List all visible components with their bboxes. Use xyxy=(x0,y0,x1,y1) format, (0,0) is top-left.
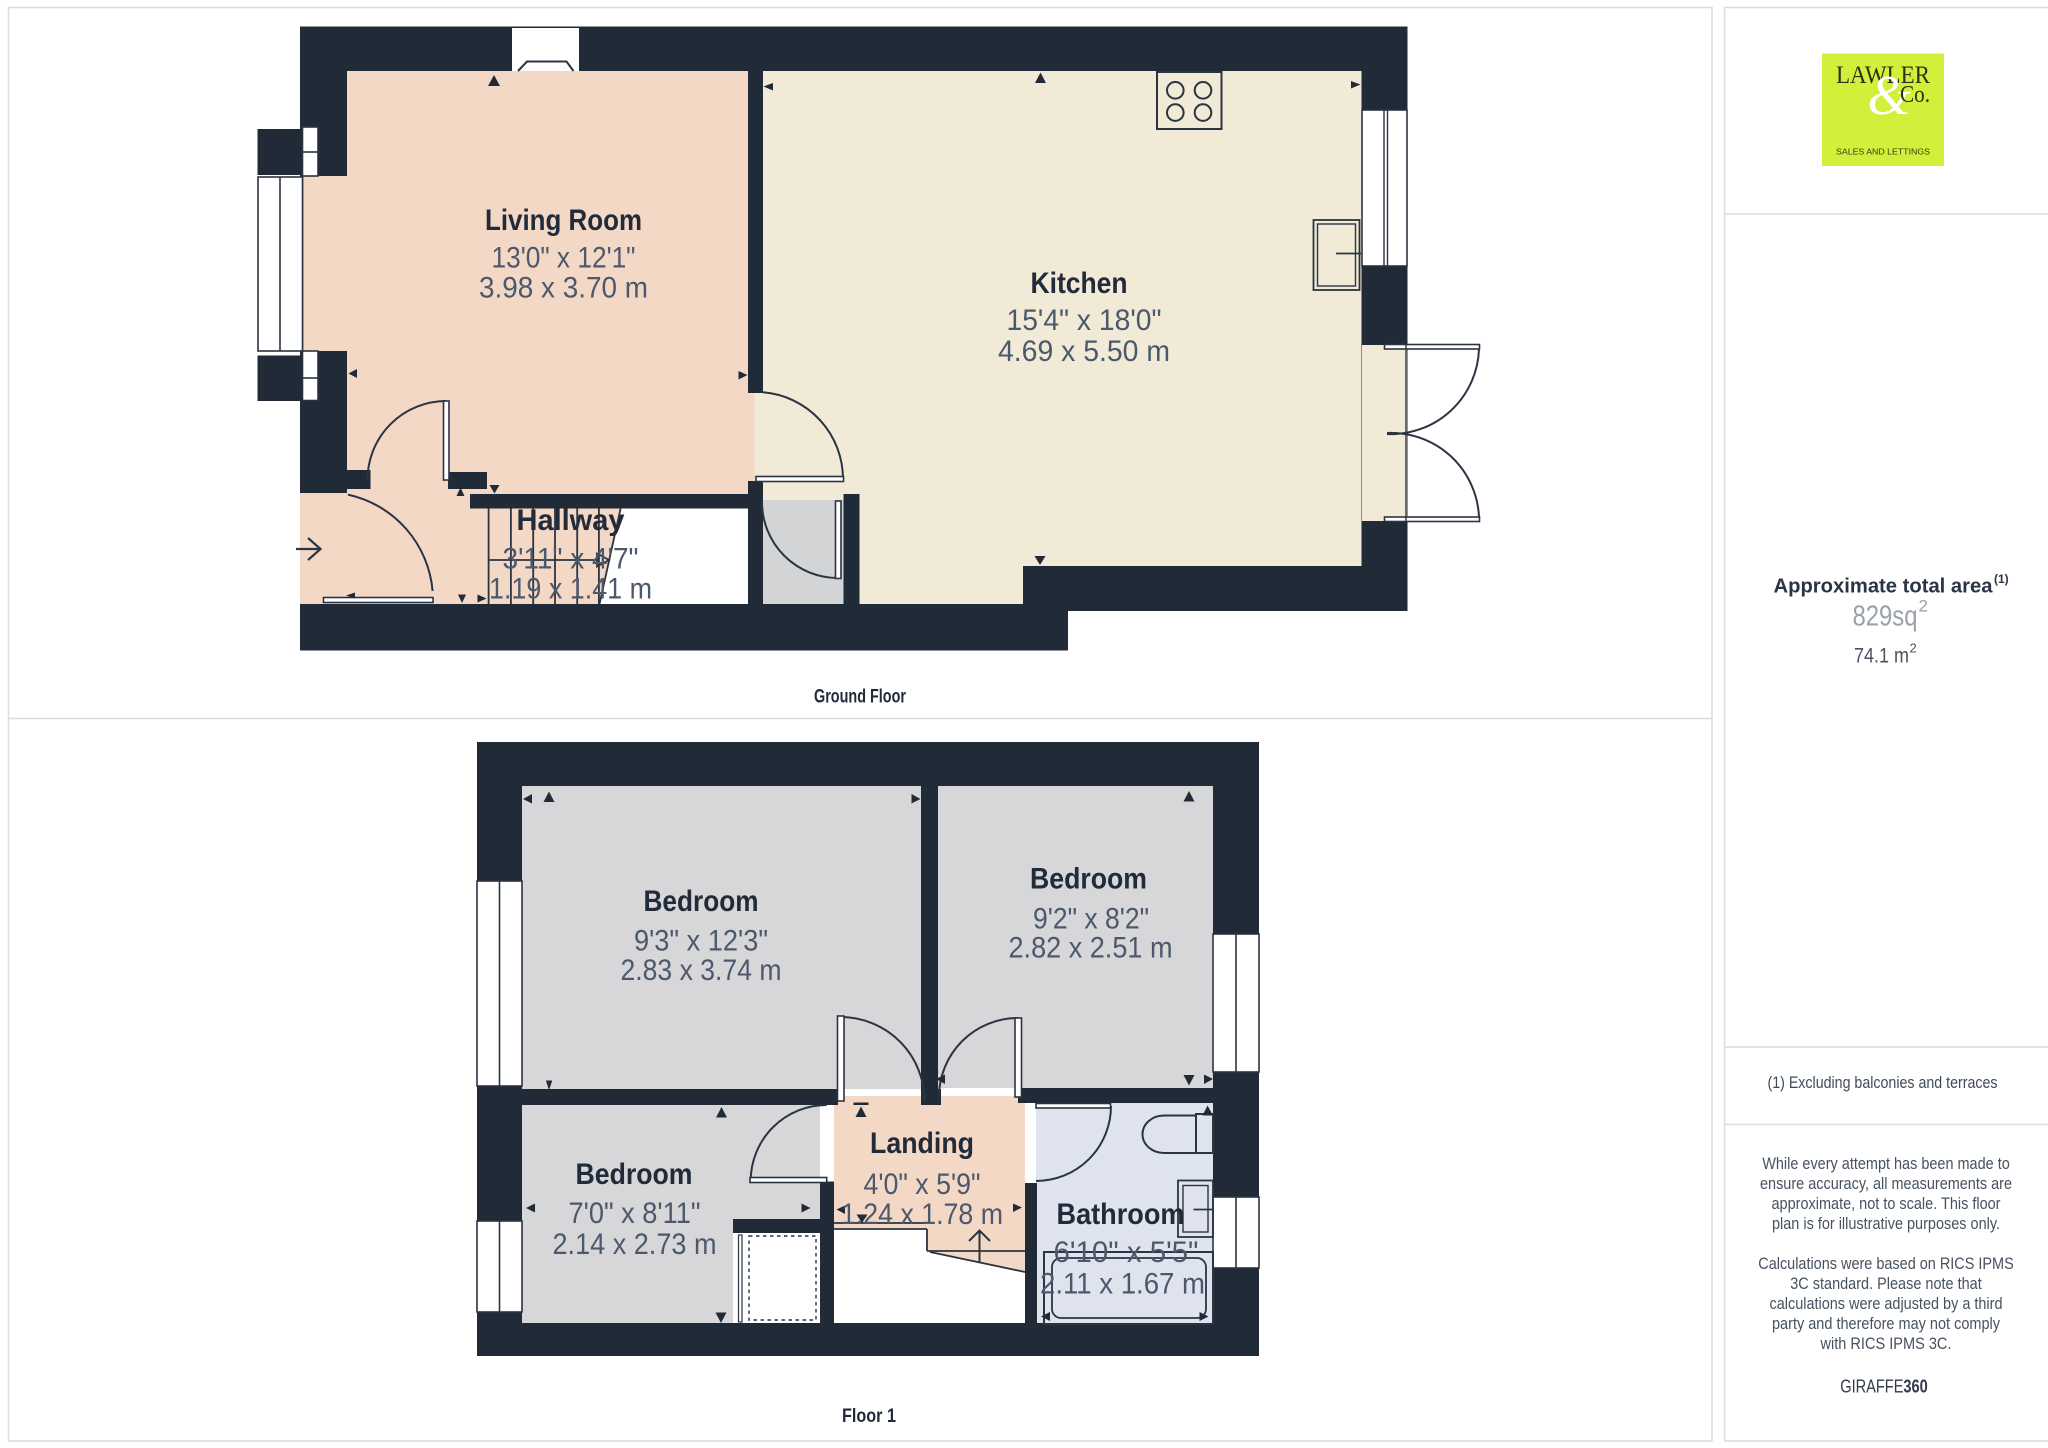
svg-text:2.11 x 1.67 m: 2.11 x 1.67 m xyxy=(1040,1268,1205,1301)
svg-text:Approximate total area: Approximate total area xyxy=(1774,575,1994,597)
svg-text:3.98 x 3.70 m: 3.98 x 3.70 m xyxy=(479,272,648,305)
svg-text:9'3" x 12'3": 9'3" x 12'3" xyxy=(634,925,768,958)
svg-text:3'11" x 4'7": 3'11" x 4'7" xyxy=(503,543,639,576)
svg-text:2.82 x 2.51 m: 2.82 x 2.51 m xyxy=(1009,932,1173,965)
svg-text:Ground Floor: Ground Floor xyxy=(814,686,906,708)
svg-text:plan is for illustrative purpo: plan is for illustrative purposes only. xyxy=(1772,1215,2000,1233)
svg-text:829sq: 829sq xyxy=(1853,601,1918,633)
svg-text:1.24 x 1.78 m: 1.24 x 1.78 m xyxy=(841,1198,1003,1231)
svg-text:SALES AND LETTINGS: SALES AND LETTINGS xyxy=(1836,148,1930,157)
svg-text:13'0" x 12'1": 13'0" x 12'1" xyxy=(492,242,636,275)
svg-text:15'4" x 18'0": 15'4" x 18'0" xyxy=(1007,304,1162,337)
svg-text:party and therefore may not co: party and therefore may not comply xyxy=(1772,1315,2001,1333)
svg-text:Co.: Co. xyxy=(1900,82,1930,108)
svg-text:Kitchen: Kitchen xyxy=(1031,267,1128,300)
svg-text:7'0" x 8'11": 7'0" x 8'11" xyxy=(569,1197,701,1230)
svg-text:Bathroom: Bathroom xyxy=(1057,1198,1185,1231)
svg-text:2: 2 xyxy=(1919,597,1928,616)
svg-text:approximate, not to scale. Thi: approximate, not to scale. This floor xyxy=(1772,1195,2001,1213)
svg-text:2.14 x 2.73 m: 2.14 x 2.73 m xyxy=(553,1228,717,1261)
svg-text:3C standard. Please note that: 3C standard. Please note that xyxy=(1790,1275,1982,1293)
svg-text:Bedroom: Bedroom xyxy=(1030,863,1147,896)
svg-text:(1) Excluding balconies and te: (1) Excluding balconies and terraces xyxy=(1768,1074,1998,1092)
svg-text:with RICS IPMS 3C.: with RICS IPMS 3C. xyxy=(1820,1335,1952,1353)
svg-text:ensure accuracy, all measureme: ensure accuracy, all measurements are xyxy=(1760,1175,2012,1193)
svg-text:4.69 x 5.50 m: 4.69 x 5.50 m xyxy=(998,335,1170,368)
svg-text:Calculations were based on RIC: Calculations were based on RICS IPMS xyxy=(1758,1255,2014,1273)
svg-text:4'0" x 5'9": 4'0" x 5'9" xyxy=(864,1168,981,1201)
svg-text:(1): (1) xyxy=(1994,572,2009,586)
svg-text:While every attempt has been m: While every attempt has been made to xyxy=(1762,1155,2010,1173)
svg-text:74.1 m: 74.1 m xyxy=(1854,644,1909,668)
svg-text:1.19 x 1.41 m: 1.19 x 1.41 m xyxy=(489,573,652,606)
svg-text:calculations were adjusted by: calculations were adjusted by a third xyxy=(1770,1295,2003,1313)
svg-text:Bedroom: Bedroom xyxy=(644,885,759,918)
svg-text:GIRAFFE360: GIRAFFE360 xyxy=(1840,1376,1928,1397)
svg-text:2.83 x 3.74 m: 2.83 x 3.74 m xyxy=(621,954,782,987)
svg-text:2: 2 xyxy=(1910,641,1917,656)
svg-text:6'10" x 5'5": 6'10" x 5'5" xyxy=(1054,1236,1199,1269)
svg-text:Bedroom: Bedroom xyxy=(576,1158,693,1191)
svg-text:Living Room: Living Room xyxy=(485,204,642,237)
svg-text:Hallway: Hallway xyxy=(517,504,625,537)
svg-text:Floor 1: Floor 1 xyxy=(842,1405,896,1427)
svg-text:Landing: Landing xyxy=(870,1127,974,1160)
